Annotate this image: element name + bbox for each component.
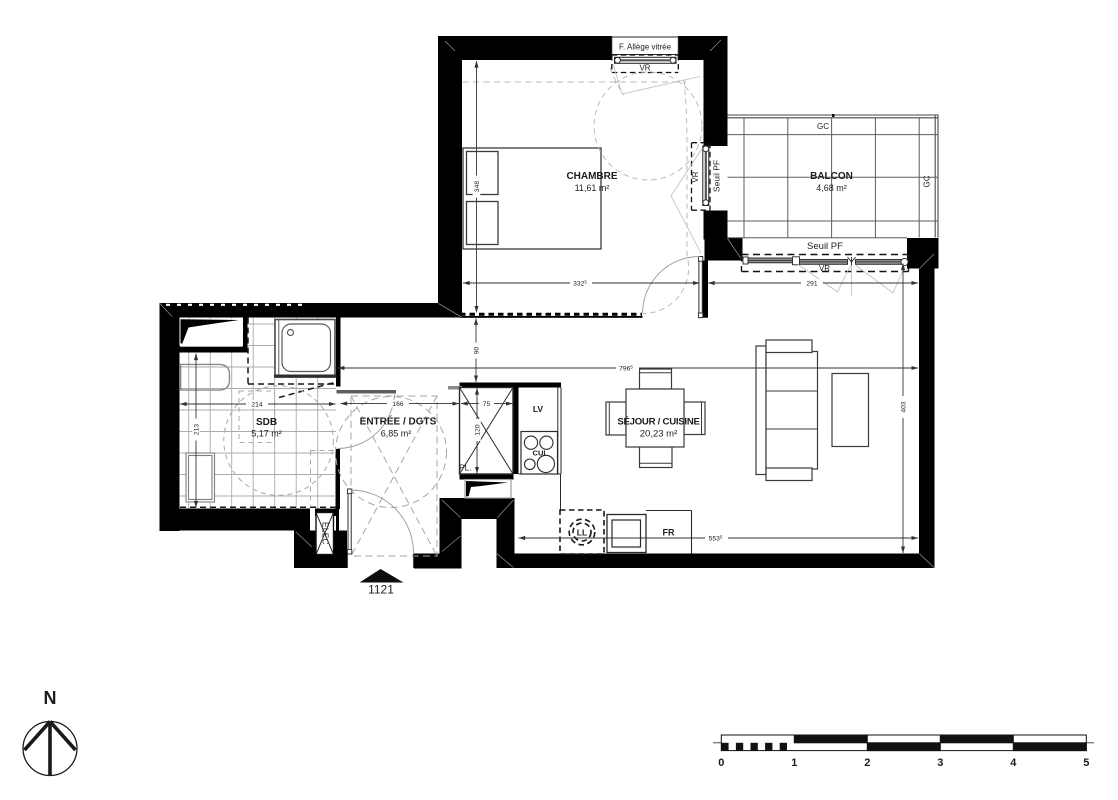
svg-text:SDB: SDB (256, 417, 277, 428)
svg-text:90: 90 (474, 347, 481, 355)
svg-text:ELEC: ELEC (321, 522, 330, 545)
svg-text:291: 291 (806, 281, 817, 288)
svg-text:VR: VR (691, 171, 700, 182)
svg-text:4,68 m²: 4,68 m² (816, 183, 847, 193)
svg-text:166: 166 (392, 401, 403, 408)
svg-text:N: N (44, 688, 57, 708)
svg-text:CUI: CUI (533, 449, 546, 458)
svg-text:20,23 m²: 20,23 m² (640, 429, 678, 440)
svg-text:VR: VR (819, 264, 830, 273)
svg-text:ENTRÉE / DGTS: ENTRÉE / DGTS (360, 415, 437, 428)
svg-text:75: 75 (483, 401, 491, 408)
svg-text:214: 214 (251, 402, 262, 409)
svg-text:FR: FR (663, 528, 675, 538)
svg-text:CHAMBRE: CHAMBRE (566, 171, 617, 182)
svg-text:5: 5 (1083, 757, 1089, 769)
svg-text:SÉJOUR / CUISINE: SÉJOUR / CUISINE (617, 416, 700, 428)
svg-text:GC: GC (817, 122, 829, 131)
svg-text:6,85 m²: 6,85 m² (381, 429, 412, 439)
svg-text:BALCON: BALCON (810, 171, 853, 182)
svg-text:GC: GC (923, 175, 932, 187)
svg-text:0: 0 (718, 757, 724, 769)
svg-text:F. Allège vitrée: F. Allège vitrée (619, 43, 672, 52)
svg-text:3: 3 (937, 757, 943, 769)
svg-text:2: 2 (864, 757, 870, 769)
svg-text:LV: LV (533, 404, 544, 414)
svg-text:11,61 m²: 11,61 m² (575, 183, 610, 193)
svg-text:Seuil PF: Seuil PF (807, 241, 843, 252)
svg-text:213: 213 (194, 424, 201, 435)
svg-text:PL.: PL. (459, 463, 472, 473)
svg-text:120: 120 (474, 424, 481, 435)
svg-text:1: 1 (791, 757, 797, 769)
svg-text:1121: 1121 (368, 583, 394, 597)
svg-text:LL: LL (577, 528, 587, 538)
svg-text:4: 4 (1010, 757, 1017, 769)
svg-text:403: 403 (900, 401, 907, 412)
svg-text:Seuil PF: Seuil PF (712, 160, 722, 192)
svg-text:VR: VR (639, 64, 650, 73)
svg-text:5,17 m²: 5,17 m² (251, 429, 282, 439)
svg-text:348: 348 (474, 181, 481, 192)
